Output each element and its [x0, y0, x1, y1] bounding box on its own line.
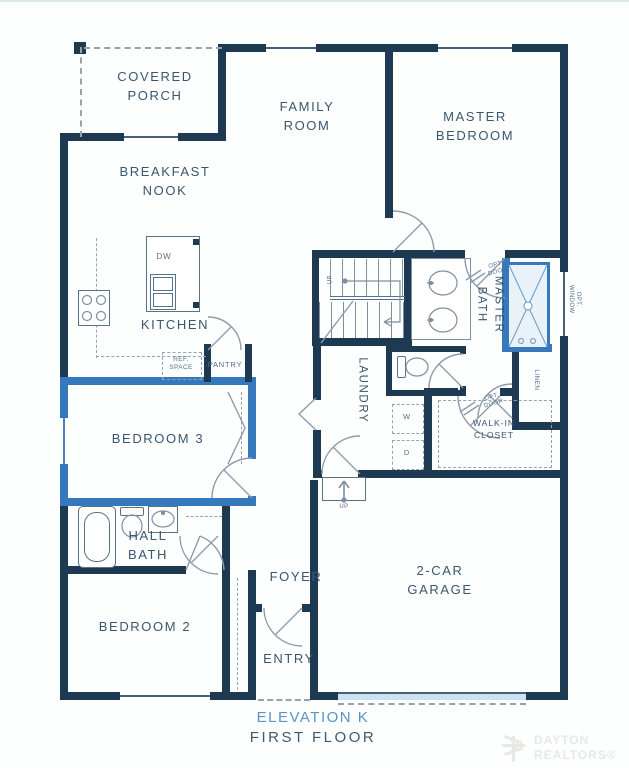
window — [438, 47, 512, 49]
room-label-bedroom-2: BEDROOM 2 — [80, 618, 210, 637]
room-label-master-bedroom: MASTER BEDROOM — [400, 108, 550, 146]
stairs-lower-run — [319, 302, 405, 338]
room-label-walk-in-closet: WALK-IN CLOSET — [438, 417, 550, 442]
wall-segment — [313, 346, 321, 400]
wall-segment — [460, 346, 466, 354]
door-laundry — [299, 398, 316, 430]
wall-segment — [302, 604, 318, 612]
scan-edge — [0, 0, 629, 2]
garage-step — [322, 477, 366, 501]
optional-window — [563, 272, 565, 336]
stairs-upper-run — [330, 259, 405, 296]
wall-segment — [313, 470, 322, 478]
wall-segment — [222, 566, 230, 700]
door-swing-garage-entry — [322, 436, 360, 474]
porch-edge-dashed — [80, 47, 82, 137]
garage-step-up-label: UP — [334, 504, 354, 511]
door-swing-bedroom-2 — [186, 536, 224, 570]
dryer-label: D — [392, 448, 422, 457]
wall-segment — [460, 386, 466, 396]
coat-closet-rod-dashed — [237, 578, 238, 690]
door-swing-master-bedroom — [393, 211, 434, 252]
wall-segment — [60, 133, 68, 379]
wall-segment — [222, 506, 230, 566]
window — [120, 695, 210, 697]
wall-segment — [248, 570, 256, 700]
wall-segment — [248, 377, 256, 459]
wall-segment — [60, 498, 256, 506]
wall-segment — [245, 344, 252, 382]
wall-segment — [218, 44, 226, 141]
closet-rod-dashed — [241, 392, 242, 464]
door-swing-water-closet — [429, 354, 463, 388]
toilet-bowl — [406, 358, 428, 376]
wall-segment — [424, 388, 458, 396]
wall-segment — [385, 44, 393, 218]
stairs-up-label: UP — [327, 271, 334, 289]
stairs-landing-edge — [330, 296, 405, 300]
room-label-garage: 2-CAR GARAGE — [372, 562, 508, 600]
room-label-entry: ENTRY — [254, 650, 324, 669]
wall-segment — [338, 692, 526, 694]
porch-door — [124, 136, 178, 138]
washer-label: W — [392, 412, 422, 421]
room-label-family-room: FAMILY ROOM — [252, 98, 362, 136]
wall-segment — [60, 566, 186, 574]
plan-title-elevation: ELEVATION K — [163, 709, 463, 726]
ref-space-label: REF. SPACE — [162, 356, 200, 372]
window — [63, 418, 65, 464]
wall-segment — [424, 390, 432, 478]
wall-segment — [60, 377, 256, 385]
room-label-kitchen: KITCHEN — [120, 316, 230, 335]
room-label-covered-porch: COVERED PORCH — [100, 68, 210, 106]
toilet — [397, 356, 406, 378]
wall-segment — [505, 250, 568, 258]
room-label-hall-bath: HALL BATH — [106, 527, 190, 565]
opt-window-label: OPT. WINDOW — [567, 275, 581, 323]
wall-segment — [193, 239, 199, 245]
floor-plan: COVERED PORCH FAMILY ROOM MASTER BEDROOM… — [0, 0, 629, 768]
wall-segment — [386, 346, 392, 396]
plan-title-floor: FIRST FLOOR — [163, 729, 463, 746]
wall-segment — [312, 250, 319, 346]
room-label-bedroom-3: BEDROOM 3 — [88, 430, 228, 449]
realtor-watermark-text: DAYTON REALTORS® — [534, 733, 617, 763]
bifold-closet-doors — [228, 392, 245, 464]
toilet — [120, 507, 144, 516]
pantry-label: PANTRY — [206, 360, 244, 369]
dishwasher-label: DW — [148, 252, 180, 262]
wall-segment — [560, 44, 568, 700]
garage-door-dashed — [338, 703, 526, 705]
linen-label: LINEN — [532, 360, 540, 400]
shower — [506, 262, 550, 350]
cooktop — [78, 290, 110, 326]
wall-segment — [153, 293, 173, 307]
wall-segment — [193, 302, 199, 308]
room-label-foyer: FOYER — [258, 568, 334, 587]
vanity — [411, 258, 471, 340]
wall-segment — [256, 604, 262, 612]
room-label-laundry: LAUNDRY — [354, 350, 371, 430]
realtor-watermark: DAYTON REALTORS® — [498, 732, 626, 766]
wall-segment — [312, 338, 408, 346]
entry-threshold-dashed — [258, 699, 310, 701]
room-label-breakfast-nook: BREAKFAST NOOK — [85, 163, 245, 201]
closet-shelf-dashed — [186, 516, 222, 517]
window — [266, 47, 316, 49]
wall-segment — [358, 470, 568, 478]
wall-segment — [60, 505, 68, 700]
door-swing-bedroom-3 — [212, 458, 252, 498]
door-swing-entry — [264, 608, 302, 646]
wall-segment — [153, 277, 173, 291]
wall-segment — [312, 250, 465, 258]
porch-edge-dashed — [84, 47, 222, 49]
wall-segment — [386, 346, 466, 352]
